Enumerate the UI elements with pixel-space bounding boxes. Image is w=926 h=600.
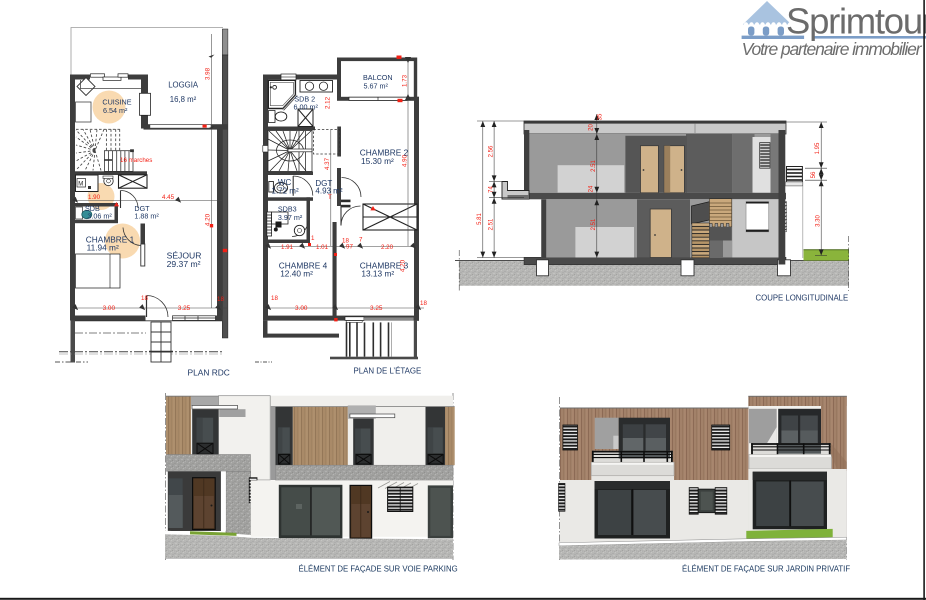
svg-text:PLAN RDC: PLAN RDC xyxy=(188,368,230,378)
svg-text:3.00: 3.00 xyxy=(295,305,308,312)
svg-text:24: 24 xyxy=(589,185,595,192)
svg-text:5.67 m²: 5.67 m² xyxy=(364,81,389,90)
svg-text:2.51: 2.51 xyxy=(591,218,597,230)
svg-text:2.20: 2.20 xyxy=(381,244,394,251)
svg-text:3.98: 3.98 xyxy=(205,67,212,80)
svg-text:16,8 m²: 16,8 m² xyxy=(170,95,197,104)
svg-text:1.88 m²: 1.88 m² xyxy=(134,211,159,220)
svg-text:1.95: 1.95 xyxy=(815,142,821,154)
svg-text:3.25: 3.25 xyxy=(370,305,383,312)
svg-text:1.73: 1.73 xyxy=(402,74,409,87)
svg-text:15.30 m²: 15.30 m² xyxy=(361,156,394,166)
svg-text:4.37: 4.37 xyxy=(324,157,331,170)
svg-text:1.72 m²: 1.72 m² xyxy=(272,186,299,195)
svg-text:1.91: 1.91 xyxy=(281,244,294,251)
svg-text:Sprimtour: Sprimtour xyxy=(786,1,926,42)
svg-text:18: 18 xyxy=(420,300,427,307)
svg-text:1.90: 1.90 xyxy=(88,194,101,201)
svg-text:3.97 m²: 3.97 m² xyxy=(278,213,303,222)
svg-text:3.30: 3.30 xyxy=(816,215,822,227)
svg-text:56: 56 xyxy=(811,171,817,178)
svg-text:1: 1 xyxy=(311,235,315,242)
svg-text:5.81: 5.81 xyxy=(477,213,483,225)
svg-text:COUPE LONGITUDINALE: COUPE LONGITUDINALE xyxy=(756,294,849,303)
svg-text:4.45: 4.45 xyxy=(162,194,175,201)
svg-text:PLAN DE L’ÉTAGE: PLAN DE L’ÉTAGE xyxy=(354,367,422,376)
svg-text:1.01: 1.01 xyxy=(316,244,329,251)
svg-text:3.25: 3.25 xyxy=(178,305,191,312)
svg-text:12.40 m²: 12.40 m² xyxy=(280,268,313,278)
svg-text:18: 18 xyxy=(217,296,224,303)
svg-text:13.13 m²: 13.13 m² xyxy=(361,268,394,278)
svg-text:ÉLÉMENT DE FAÇADE SUR VOIE PAR: ÉLÉMENT DE FAÇADE SUR VOIE PARKING xyxy=(299,565,458,574)
svg-text:2.51: 2.51 xyxy=(591,160,597,172)
svg-text:6.54 m²: 6.54 m² xyxy=(103,106,128,115)
svg-text:LOGGIA: LOGGIA xyxy=(168,81,199,90)
svg-text:74: 74 xyxy=(489,186,495,193)
svg-text:3.00: 3.00 xyxy=(103,305,116,312)
svg-text:18: 18 xyxy=(271,295,278,302)
svg-text:11.94 m²: 11.94 m² xyxy=(87,242,119,252)
svg-text:M: M xyxy=(78,182,83,188)
svg-text:7: 7 xyxy=(359,237,363,244)
svg-text:97: 97 xyxy=(346,244,353,251)
svg-text:3.06 m²: 3.06 m² xyxy=(87,211,112,220)
svg-text:20: 20 xyxy=(589,124,595,131)
svg-text:4.93 m²: 4.93 m² xyxy=(315,186,342,195)
svg-text:2.56: 2.56 xyxy=(489,145,495,157)
svg-text:29.37 m²: 29.37 m² xyxy=(167,259,201,269)
svg-text:6.00 m²: 6.00 m² xyxy=(294,102,319,111)
svg-text:2.12: 2.12 xyxy=(325,96,332,109)
svg-text:18: 18 xyxy=(141,295,148,302)
svg-text:2.51: 2.51 xyxy=(489,218,495,230)
svg-text:16 marches: 16 marches xyxy=(120,157,152,164)
svg-text:ÉLÉMENT DE FAÇADE SUR JARDIN P: ÉLÉMENT DE FAÇADE SUR JARDIN PRIVATIF xyxy=(682,565,850,574)
svg-text:Votre partenaire immobilier: Votre partenaire immobilier xyxy=(742,39,923,59)
svg-text:35: 35 xyxy=(598,113,604,120)
svg-text:18: 18 xyxy=(342,238,349,245)
